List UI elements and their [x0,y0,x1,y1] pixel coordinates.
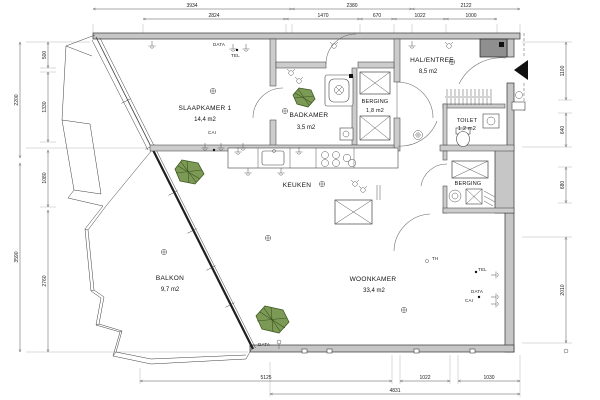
door-arc-entry [459,58,506,84]
dim-col-right: 1100 640 680 2010 [560,42,568,353]
plant-icon [256,306,289,333]
svg-text:TOILET: TOILET [457,118,478,124]
room-label-toilet: TOILET 1,2 m2 [457,118,478,132]
tel-label: TEL [478,267,487,272]
dim-col-left-inner: 500 1330 1080 2760 [42,42,48,352]
floorplan-drawing: 3934 2380 2122 2824 1470 670 1022 1000 5… [0,0,600,400]
shower-icon [325,74,353,106]
door-arc-toilet [398,121,437,146]
dim-value: 2380 [346,3,357,9]
door-arc-berging1 [397,82,433,118]
svg-text:1,8 m2: 1,8 m2 [366,108,384,114]
dim-value: 1030 [483,375,494,381]
dim-col-left-outer: 2200 3590 [14,42,20,352]
sink-icon [262,151,284,165]
svg-text:BALKON: BALKON [156,275,184,282]
svg-text:BERGING: BERGING [455,181,482,187]
exterior-walls [93,33,524,352]
svg-text:BERGING: BERGING [362,99,389,105]
dim-value: 1330 [42,101,48,112]
dim-value: 640 [560,126,566,135]
ventilation-icon [414,131,423,140]
svg-text:BADKAMER: BADKAMER [290,112,329,119]
room-label-berging2: BERGING [455,181,482,187]
room-label-woonkamer: WOONKAMER 33,4 m2 [350,276,397,294]
dim-value: 680 [560,181,566,190]
svg-text:33,4 m2: 33,4 m2 [363,288,385,294]
dim-value: 1470 [317,13,328,19]
dim-value: 2824 [208,13,219,19]
svg-text:1,2 m2: 1,2 m2 [458,126,476,132]
plant-icon [175,160,204,184]
dim-value: 670 [373,13,382,19]
room-label-hal: HAL/ENTREE 8,5 m2 [410,57,454,75]
dim-value: 2200 [14,94,20,105]
room-label-berging1: BERGING 1,8 m2 [362,99,389,114]
plant-icon [293,88,315,107]
dim-row-top-1: 3934 2380 2122 [93,3,520,9]
dim-value: 3934 [186,3,197,9]
svg-text:HAL/ENTREE: HAL/ENTREE [410,57,454,64]
dim-value: 2122 [460,3,471,9]
dim-value: 3590 [14,251,20,262]
toilet-sink-icon [483,114,499,128]
room-label-slaapkamer: SLAAPKAMER 1 14,4 m2 [178,105,231,123]
meter-cupboard [480,39,507,57]
dim-row-bottom-1: 5125 1022 1030 [140,375,520,381]
washer-dryer-icons [360,72,390,140]
door-arc-bedroom [253,88,283,118]
svg-text:KEUKEN: KEUKEN [283,182,312,189]
kitchen-counter [228,147,398,175]
room-label-balkon: BALKON 9,7 m2 [156,275,184,293]
th-label: TH [432,256,438,261]
dim-row-bottom-2: 4831 [270,388,520,394]
dim-value: 1000 [465,13,476,19]
cai-label: CAI [208,130,216,135]
cai-label: CAI [465,298,473,303]
room-label-badkamer: BADKAMER 3,5 m2 [290,112,329,131]
dim-value: 5125 [260,375,271,381]
svg-text:3,5 m2: 3,5 m2 [297,125,316,131]
data-label: DATA [258,342,270,347]
data-label: DATA [213,42,225,47]
dim-value: 4831 [389,388,400,394]
washbasin-icon [340,128,353,140]
dim-value: 1100 [560,65,566,76]
room-label-keuken: KEUKEN [283,182,312,189]
entry-arrow-icon [514,60,528,80]
survey-point-icon [564,349,568,353]
svg-text:14,4 m2: 14,4 m2 [194,117,216,123]
door-arc-berging2 [421,164,447,186]
svg-text:8,5 m2: 8,5 m2 [419,69,438,75]
dim-value: 500 [42,51,48,60]
svg-text:SLAAPKAMER 1: SLAAPKAMER 1 [178,105,231,112]
dim-value: 2010 [560,284,566,295]
radiator-icon [445,89,492,105]
door-arc-woonkamer [394,214,430,251]
fridge-icon [335,180,380,224]
dim-value: 1080 [42,172,48,183]
balcony-facade-band [62,35,252,364]
dim-value: 1022 [419,375,430,381]
dim-value: 1022 [414,13,425,19]
dim-value: 2760 [42,275,48,286]
tel-label: TEL [231,53,240,58]
svg-text:WOONKAMER: WOONKAMER [350,276,397,283]
dim-row-top-2: 2824 1470 670 1022 1000 [143,13,497,19]
svg-text:9,7 m2: 9,7 m2 [161,287,180,293]
floorplan-page: 3934 2380 2122 2824 1470 670 1022 1000 5… [0,0,600,400]
data-label: DATA [471,289,483,294]
